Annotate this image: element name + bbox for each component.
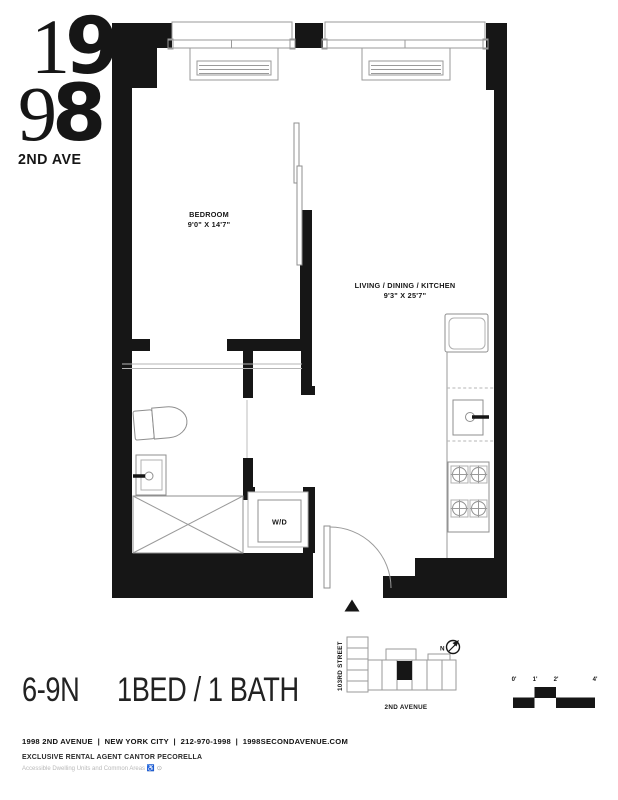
entry-marker-icon bbox=[345, 600, 360, 612]
ptac-unit-living bbox=[362, 48, 450, 80]
unit-layout: 1BED / 1 BATH bbox=[117, 671, 299, 710]
scale-4: 4' bbox=[593, 677, 598, 683]
bedroom-label: BEDROOM bbox=[189, 210, 229, 219]
scale-0: 0' bbox=[512, 677, 517, 683]
washer-dryer-box: W/D bbox=[248, 492, 308, 547]
ptac-unit-bedroom bbox=[190, 48, 278, 80]
scale-bar: 0' 1' 2' 4' bbox=[512, 677, 598, 708]
north-arrow-icon: N bbox=[440, 640, 460, 654]
accessibility-text: Accessible Dwelling Units and Common Are… bbox=[22, 766, 147, 772]
unit-number: 6-9N bbox=[22, 671, 79, 710]
shower bbox=[133, 496, 243, 553]
kitchen-sink bbox=[453, 400, 489, 435]
north-label: N bbox=[440, 646, 445, 653]
scale-2: 2' bbox=[554, 677, 559, 683]
scale-1: 1' bbox=[533, 677, 538, 683]
sliding-door-panels bbox=[294, 123, 302, 265]
wheelchair-icon: ♿ ⊙ bbox=[147, 765, 162, 772]
bedroom-window bbox=[168, 22, 295, 49]
door-swing-arc bbox=[330, 527, 391, 588]
living-window bbox=[322, 22, 488, 49]
floorplan-page: 19 98 2ND AVE bbox=[0, 0, 618, 800]
footer: 1998 2ND AVENUE | NEW YORK CITY | 212-97… bbox=[22, 737, 348, 772]
unit-title: 6-9N 1BED / 1 BATH bbox=[22, 671, 299, 710]
living-dims: 9'3" X 25'7" bbox=[384, 291, 427, 300]
street-label-103rd: 103RD STREET bbox=[337, 641, 344, 691]
bathroom-sink bbox=[133, 455, 166, 495]
key-plan: 103RD STREET 2ND AVENUE bbox=[337, 637, 460, 711]
washer-dryer-label: W/D bbox=[272, 518, 287, 527]
refrigerator bbox=[445, 314, 488, 352]
toilet bbox=[133, 405, 189, 441]
room-labels: BEDROOM 9'0" X 14'7" LIVING / DINING / K… bbox=[188, 210, 456, 300]
footer-agent-line: EXCLUSIVE RENTAL AGENT CANTOR PECORELLA bbox=[22, 754, 348, 761]
footer-accessibility-line: Accessible Dwelling Units and Common Are… bbox=[22, 764, 348, 772]
kitchen bbox=[445, 314, 494, 558]
living-label: LIVING / DINING / KITCHEN bbox=[355, 281, 456, 290]
stove bbox=[448, 462, 489, 532]
entry-door bbox=[324, 526, 391, 588]
footer-contact-line: 1998 2ND AVENUE | NEW YORK CITY | 212-97… bbox=[22, 737, 348, 746]
bedroom-dims: 9'0" X 14'7" bbox=[188, 220, 231, 229]
highlighted-unit bbox=[397, 661, 412, 680]
street-label-2nd-ave: 2ND AVENUE bbox=[385, 704, 428, 711]
